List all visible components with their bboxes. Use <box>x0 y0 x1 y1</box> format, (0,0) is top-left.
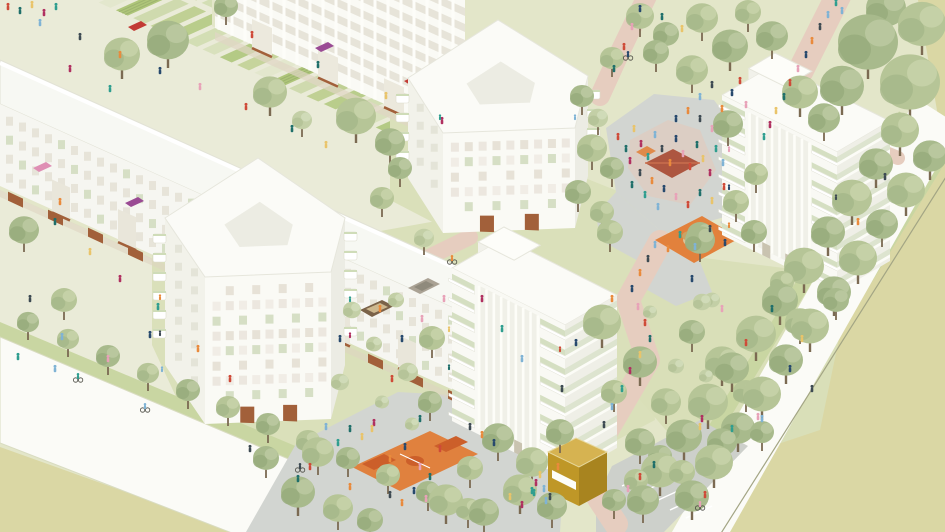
bush <box>331 374 349 391</box>
bush <box>699 370 713 383</box>
tree <box>357 508 383 532</box>
neighborhood-illustration <box>0 0 945 532</box>
bush <box>643 306 657 319</box>
bush <box>388 293 404 308</box>
bush <box>398 363 418 381</box>
bush <box>366 337 382 352</box>
bush <box>343 302 361 319</box>
illustration-root <box>0 0 945 532</box>
bush <box>405 418 419 431</box>
bush <box>375 396 389 409</box>
bush <box>668 359 684 374</box>
bush <box>693 294 711 311</box>
